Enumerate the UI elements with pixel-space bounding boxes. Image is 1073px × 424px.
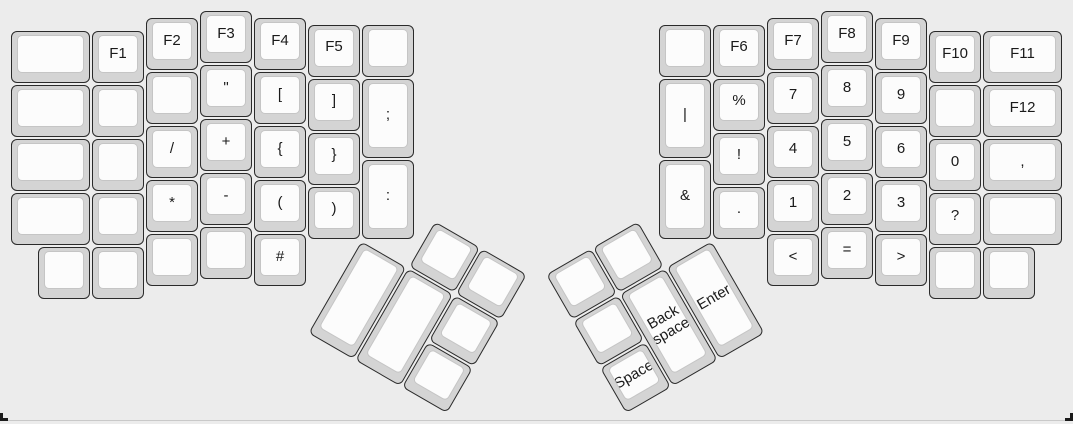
keycap-top-surface: * [153, 185, 191, 221]
keycap-top-surface: 6 [882, 131, 920, 167]
keycap-top-surface: } [315, 138, 353, 174]
keyboard-canvas: F1F2/*F3"+-F4[{(#F5]});:|&F6%!.F7741<F88… [0, 0, 1073, 424]
key-double-quote[interactable]: " [200, 65, 252, 117]
key-legend: } [331, 147, 336, 164]
key-blank[interactable] [929, 85, 981, 137]
key-f4[interactable]: F4 [254, 18, 306, 70]
key-legend: Space [612, 357, 657, 393]
keycap-top-surface: 9 [882, 77, 920, 113]
key-digit-9[interactable]: 9 [875, 72, 927, 124]
key-legend: 2 [843, 188, 851, 205]
keycap-top-surface: < [774, 239, 812, 275]
keycap-top-surface: = [828, 232, 866, 268]
keycap-top-surface [555, 256, 606, 306]
key-percent[interactable]: % [713, 79, 765, 131]
keycap-top-surface: ) [315, 192, 353, 228]
key-blank[interactable] [659, 25, 711, 77]
canvas-corner-mark-left [0, 413, 8, 421]
key-legend: = [843, 242, 852, 259]
key-left-brace[interactable]: { [254, 126, 306, 178]
keycap-top-surface: 3 [882, 185, 920, 221]
key-exclamation[interactable]: ! [713, 133, 765, 185]
keycap-top-surface: + [207, 124, 245, 160]
key-left-paren[interactable]: ( [254, 180, 306, 232]
key-legend: 9 [897, 87, 905, 104]
keycap-top-surface [18, 36, 83, 72]
key-legend: F2 [163, 33, 181, 50]
key-digit-6[interactable]: 6 [875, 126, 927, 178]
key-period[interactable]: . [713, 187, 765, 239]
key-f5[interactable]: F5 [308, 25, 360, 77]
keycap-top-surface [990, 198, 1055, 234]
keycap-top-surface: - [207, 178, 245, 214]
key-legend: 8 [843, 80, 851, 97]
key-legend: ( [278, 195, 283, 212]
key-less-than[interactable]: < [767, 234, 819, 286]
keycap-top-surface: & [666, 165, 704, 228]
key-f1[interactable]: F1 [92, 31, 144, 83]
keycap-top-surface: : [369, 165, 407, 228]
keycap-top-surface: . [720, 192, 758, 228]
keycap-top-surface [936, 252, 974, 288]
canvas-bottom-edge [0, 420, 1073, 421]
key-right-brace[interactable]: } [308, 133, 360, 185]
keycap-top-surface: 0 [936, 144, 974, 180]
key-legend: / [170, 141, 174, 158]
key-legend: Enter [694, 281, 733, 313]
keycap-top-surface: F5 [315, 30, 353, 66]
key-left-bracket[interactable]: [ [254, 72, 306, 124]
keycap-top-surface [666, 30, 704, 66]
key-legend: 3 [897, 195, 905, 212]
keycap-top-surface: { [261, 131, 299, 167]
key-digit-5[interactable]: 5 [821, 119, 873, 171]
keycap-top-surface: F9 [882, 23, 920, 59]
keycap-top-surface: > [882, 239, 920, 275]
keycap-top-surface: F10 [936, 36, 974, 72]
key-blank[interactable] [92, 139, 144, 191]
key-legend: 4 [789, 141, 797, 158]
key-hash[interactable]: # [254, 234, 306, 286]
key-pipe[interactable]: | [659, 79, 711, 158]
key-legend: F1 [109, 46, 127, 63]
key-greater-than[interactable]: > [875, 234, 927, 286]
keycap-top-surface: ! [720, 138, 758, 174]
key-legend: * [169, 195, 175, 212]
keycap-top-surface [18, 198, 83, 234]
key-blank[interactable] [146, 72, 198, 124]
key-legend: F8 [838, 26, 856, 43]
key-semicolon[interactable]: ; [362, 79, 414, 158]
keycap-top-surface [601, 229, 652, 279]
keycap-top-surface [18, 144, 83, 180]
key-legend: 1 [789, 195, 797, 212]
key-legend: | [683, 107, 687, 124]
keycap-top-surface: F2 [153, 23, 191, 59]
key-legend: F3 [217, 26, 235, 43]
keycap-top-surface: % [720, 84, 758, 120]
keycap-top-surface [421, 229, 472, 279]
keycap-top-surface: F12 [990, 90, 1055, 126]
key-digit-3[interactable]: 3 [875, 180, 927, 232]
key-legend: F6 [730, 39, 748, 56]
key-legend: , [1020, 154, 1024, 171]
key-digit-4[interactable]: 4 [767, 126, 819, 178]
keycap-top-surface [369, 30, 407, 66]
keycap-top-surface [45, 252, 83, 288]
key-minus[interactable]: - [200, 173, 252, 225]
key-legend: ) [332, 201, 337, 218]
key-legend: ; [386, 107, 390, 124]
key-legend: F10 [942, 46, 968, 63]
key-digit-0[interactable]: 0 [929, 139, 981, 191]
key-blank[interactable] [11, 85, 90, 137]
key-digit-2[interactable]: 2 [821, 173, 873, 225]
key-legend: F5 [325, 39, 343, 56]
key-legend: - [224, 188, 229, 205]
keycap-top-surface: ] [315, 84, 353, 120]
key-blank[interactable] [11, 193, 90, 245]
keycap-top-surface: " [207, 70, 245, 106]
keycap-top-surface [99, 252, 137, 288]
key-blank[interactable] [92, 193, 144, 245]
keycap-top-surface [18, 90, 83, 126]
keycap-top-surface [467, 256, 518, 306]
keycap-top-surface: ( [261, 185, 299, 221]
key-f2[interactable]: F2 [146, 18, 198, 70]
keycap-top-surface: , [990, 144, 1055, 180]
keycap-top-surface [153, 239, 191, 275]
key-blank[interactable] [362, 25, 414, 77]
keycap-top-surface: F11 [990, 36, 1055, 72]
key-digit-1[interactable]: 1 [767, 180, 819, 232]
key-blank[interactable] [11, 31, 90, 83]
keycap-top-surface [582, 303, 633, 353]
key-f8[interactable]: F8 [821, 11, 873, 63]
keycap-top-surface [99, 198, 137, 234]
key-f11[interactable]: F11 [983, 31, 1062, 83]
key-legend: F9 [892, 33, 910, 50]
key-right-paren[interactable]: ) [308, 187, 360, 239]
key-legend: + [222, 134, 231, 151]
key-legend: 5 [843, 134, 851, 151]
keycap-top-surface: F6 [720, 30, 758, 66]
key-blank[interactable] [983, 193, 1062, 245]
key-f7[interactable]: F7 [767, 18, 819, 70]
keycap-top-surface: F1 [99, 36, 137, 72]
keycap-top-surface: Space [609, 349, 660, 399]
key-legend: " [223, 80, 228, 97]
keycap-top-surface: 7 [774, 77, 812, 113]
key-f3[interactable]: F3 [200, 11, 252, 63]
key-legend: F12 [1010, 100, 1036, 117]
key-legend: F4 [271, 33, 289, 50]
key-blank[interactable] [92, 85, 144, 137]
key-f12[interactable]: F12 [983, 85, 1062, 137]
keycap-top-surface: 2 [828, 178, 866, 214]
keycap-top-surface [207, 232, 245, 268]
key-f6[interactable]: F6 [713, 25, 765, 77]
keycap-top-surface: F3 [207, 16, 245, 52]
key-legend: F7 [784, 33, 802, 50]
key-ampersand[interactable]: & [659, 160, 711, 239]
key-legend: ] [332, 93, 336, 110]
key-legend: ? [951, 208, 959, 225]
key-digit-7[interactable]: 7 [767, 72, 819, 124]
key-blank[interactable] [146, 234, 198, 286]
keycap-top-surface: F4 [261, 23, 299, 59]
key-legend: { [277, 141, 282, 158]
keycap-top-surface [990, 252, 1028, 288]
keycap-top-surface: | [666, 84, 704, 147]
key-colon[interactable]: : [362, 160, 414, 239]
keycap-top-surface: 5 [828, 124, 866, 160]
key-blank[interactable] [929, 247, 981, 299]
key-legend: # [276, 249, 284, 266]
key-f9[interactable]: F9 [875, 18, 927, 70]
key-blank[interactable] [92, 247, 144, 299]
key-comma[interactable]: , [983, 139, 1062, 191]
keycap-top-surface [153, 77, 191, 113]
key-legend: ! [737, 147, 741, 164]
keycap-top-surface [99, 90, 137, 126]
key-question[interactable]: ? [929, 193, 981, 245]
key-legend: 7 [789, 87, 797, 104]
key-blank[interactable] [200, 227, 252, 279]
key-blank[interactable] [11, 139, 90, 191]
key-plus[interactable]: + [200, 119, 252, 171]
canvas-corner-mark-right [1065, 413, 1073, 421]
key-legend: F11 [1010, 46, 1035, 63]
key-digit-8[interactable]: 8 [821, 65, 873, 117]
key-f10[interactable]: F10 [929, 31, 981, 83]
key-blank[interactable] [38, 247, 90, 299]
keycap-top-surface: ; [369, 84, 407, 147]
key-legend: & [680, 188, 690, 205]
key-slash[interactable]: / [146, 126, 198, 178]
keycap-top-surface [99, 144, 137, 180]
key-legend: 6 [897, 141, 905, 158]
key-legend: [ [278, 87, 282, 104]
key-blank[interactable] [983, 247, 1035, 299]
keycap-top-surface: [ [261, 77, 299, 113]
key-legend: Back space [642, 300, 693, 349]
key-right-bracket[interactable]: ] [308, 79, 360, 131]
key-asterisk[interactable]: * [146, 180, 198, 232]
key-legend: 0 [951, 154, 959, 171]
key-legend: % [732, 93, 745, 110]
keycap-top-surface [936, 90, 974, 126]
keycap-top-surface: 8 [828, 70, 866, 106]
keycap-top-surface: 4 [774, 131, 812, 167]
keycap-top-surface: F8 [828, 16, 866, 52]
key-legend: > [897, 249, 906, 266]
keycap-top-surface: 1 [774, 185, 812, 221]
keycap-top-surface: F7 [774, 23, 812, 59]
key-legend: . [737, 201, 741, 218]
key-equals[interactable]: = [821, 227, 873, 279]
keycap-top-surface: ? [936, 198, 974, 234]
keycap-top-surface: / [153, 131, 191, 167]
key-legend: : [386, 188, 390, 205]
key-legend: < [789, 249, 798, 266]
keycap-top-surface: # [261, 239, 299, 275]
